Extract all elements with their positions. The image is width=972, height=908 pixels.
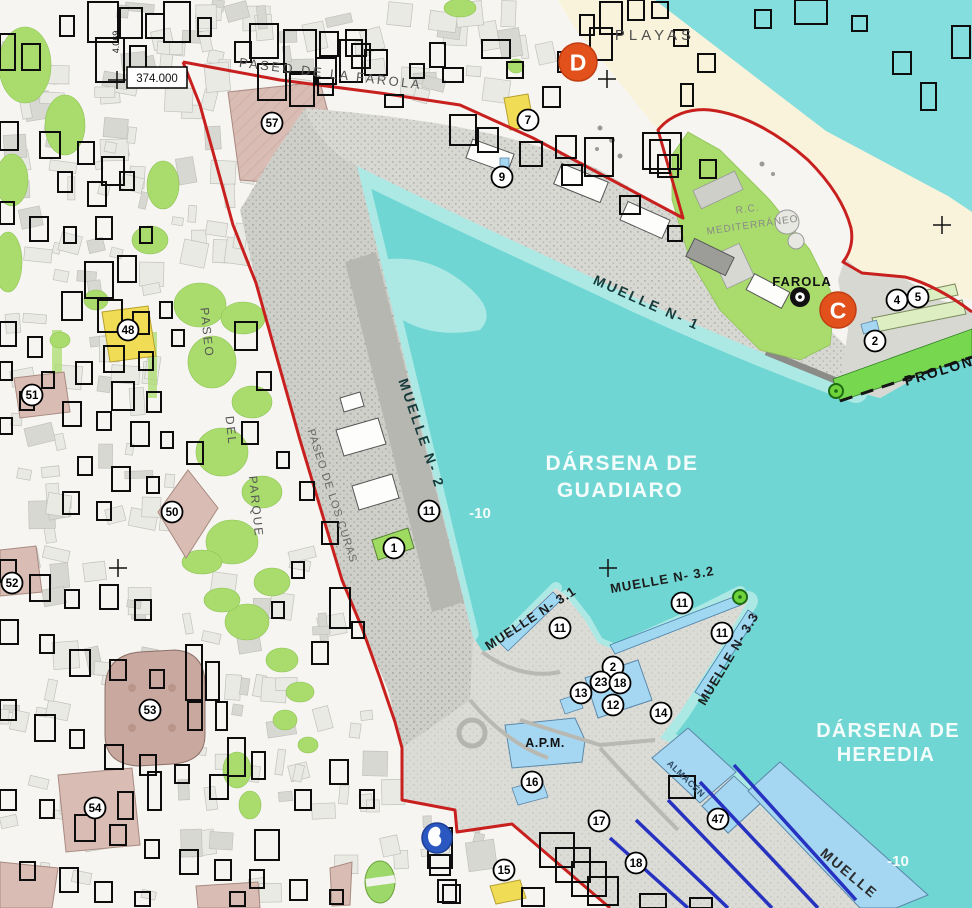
city-block: [180, 239, 209, 268]
svg-text:2: 2: [872, 336, 878, 348]
svg-text:17: 17: [593, 816, 606, 828]
numbered-marker-18[interactable]: 18: [626, 853, 647, 874]
city-block: [380, 835, 401, 857]
city-block: [256, 5, 267, 29]
svg-text:2: 2: [610, 662, 616, 674]
numbered-marker-50[interactable]: 50: [162, 502, 183, 523]
depth-label: -10: [887, 853, 909, 870]
city-block: [466, 66, 481, 77]
city-block: [99, 444, 113, 468]
svg-text:11: 11: [423, 506, 436, 518]
park-blob: [132, 226, 168, 254]
numbered-marker-11[interactable]: 11: [672, 593, 693, 614]
city-block: [501, 0, 516, 27]
city-block: [83, 561, 107, 582]
numbered-marker-47[interactable]: 47: [708, 809, 729, 830]
city-block: [170, 43, 183, 55]
city-block: [465, 839, 497, 872]
svg-text:9: 9: [499, 172, 505, 184]
water-basin-label: DÁRSENA DE: [545, 452, 698, 475]
city-block: [5, 313, 21, 333]
cathedral-detail: [168, 724, 176, 732]
city-block: [127, 127, 137, 144]
park-blob: [444, 0, 476, 17]
svg-text:57: 57: [266, 118, 279, 130]
city-block: [142, 497, 161, 517]
svg-text:12: 12: [607, 700, 620, 712]
city-block: [224, 674, 241, 700]
depth-label: -10: [469, 505, 491, 522]
numbered-marker-16[interactable]: 16: [522, 772, 543, 793]
svg-text:51: 51: [26, 390, 39, 402]
park-blob: [286, 682, 314, 702]
street-label: A.P.M.: [525, 736, 565, 750]
numbered-marker-7[interactable]: 7: [518, 110, 539, 131]
city-block: [24, 247, 53, 263]
building-pink: [330, 862, 352, 906]
svg-text:5: 5: [915, 292, 922, 304]
svg-text:7: 7: [525, 115, 531, 127]
coordinate-label: 4.069: [111, 31, 121, 54]
city-block: [205, 221, 227, 237]
blue-point-marker[interactable]: [422, 823, 452, 853]
numbered-marker-23[interactable]: 23: [591, 672, 612, 693]
city-block: [360, 710, 373, 721]
park-blob: [147, 161, 179, 209]
svg-text:4: 4: [894, 295, 901, 307]
city-block: [209, 831, 233, 850]
svg-text:D: D: [570, 49, 587, 75]
city-block: [188, 205, 197, 222]
city-block: [95, 87, 115, 98]
svg-text:15: 15: [498, 865, 511, 877]
numbered-marker-52[interactable]: 52: [2, 573, 23, 594]
svg-text:52: 52: [6, 578, 19, 590]
city-block: [42, 586, 67, 606]
city-block: [164, 474, 174, 488]
svg-text:11: 11: [554, 623, 567, 635]
city-block: [53, 269, 69, 282]
svg-text:13: 13: [575, 688, 588, 700]
numbered-marker-57[interactable]: 57: [262, 113, 283, 134]
street-label: PLAYAS: [615, 27, 695, 44]
city-block: [349, 723, 361, 739]
numbered-marker-51[interactable]: 51: [22, 385, 43, 406]
green-dot-marker[interactable]: [733, 590, 747, 604]
city-block: [280, 31, 297, 42]
city-block: [164, 87, 193, 112]
svg-text:53: 53: [144, 705, 157, 717]
svg-text:1: 1: [391, 543, 398, 555]
city-block: [41, 466, 60, 478]
city-block: [172, 217, 184, 226]
numbered-marker-5[interactable]: 5: [908, 287, 929, 308]
numbered-marker-4[interactable]: 4: [887, 290, 908, 311]
numbered-marker-2[interactable]: 2: [865, 331, 886, 352]
cathedral-detail: [168, 684, 176, 692]
park-blob: [50, 332, 70, 348]
svg-text:23: 23: [595, 677, 608, 689]
city-block: [210, 160, 236, 185]
cathedral-detail: [128, 724, 136, 732]
green-dot-marker[interactable]: [829, 384, 843, 398]
city-block: [23, 313, 47, 324]
city-block: [50, 563, 70, 589]
svg-text:16: 16: [526, 777, 539, 789]
city-block: [313, 626, 331, 635]
city-block: [312, 803, 336, 819]
park-blob: [273, 710, 297, 730]
numbered-marker-11[interactable]: 11: [712, 623, 733, 644]
svg-text:C: C: [830, 297, 847, 323]
numbered-marker-53[interactable]: 53: [140, 700, 161, 721]
water-basin-label: DÁRSENA DE: [816, 719, 960, 742]
svg-text:11: 11: [676, 598, 689, 610]
city-block: [52, 641, 80, 670]
numbered-marker-11[interactable]: 11: [419, 501, 440, 522]
letter-marker-D[interactable]: D: [559, 43, 597, 81]
park-blob: [254, 568, 290, 596]
city-block: [338, 785, 349, 804]
city-block: [0, 709, 9, 724]
park-blob: [266, 648, 298, 672]
numbered-marker-48[interactable]: 48: [118, 320, 139, 341]
city-block: [259, 883, 281, 902]
city-block: [363, 751, 388, 776]
svg-text:50: 50: [166, 507, 179, 519]
city-block: [104, 141, 117, 153]
lighthouse-icon[interactable]: [790, 287, 810, 307]
port-map-stage: DÁRSENA DEGUADIARODÁRSENA DEHEREDIA-10-1…: [0, 0, 972, 908]
club-pool: [788, 233, 804, 249]
park-blob: [239, 791, 261, 819]
city-block: [103, 117, 128, 138]
city-block: [366, 800, 379, 812]
city-block: [232, 704, 244, 716]
building-pink: [0, 862, 58, 908]
street-label: FAROLA: [772, 274, 831, 289]
city-block: [97, 376, 112, 393]
svg-text:18: 18: [614, 678, 627, 690]
numbered-marker-17[interactable]: 17: [589, 811, 610, 832]
numbered-marker-13[interactable]: 13: [571, 683, 592, 704]
svg-text:11: 11: [716, 628, 729, 640]
port-map: DÁRSENA DEGUADIARODÁRSENA DEHEREDIA-10-1…: [0, 0, 972, 908]
water-basin-label: GUADIARO: [557, 479, 683, 502]
numbered-marker-9[interactable]: 9: [492, 167, 513, 188]
city-block: [387, 2, 413, 27]
park-blob: [0, 27, 51, 103]
city-block: [129, 387, 145, 415]
city-block: [278, 791, 292, 802]
numbered-marker-18[interactable]: 18: [610, 673, 631, 694]
park-blob: [298, 737, 318, 753]
numbered-marker-15[interactable]: 15: [494, 860, 515, 881]
svg-text:18: 18: [630, 858, 643, 870]
svg-text:54: 54: [89, 803, 102, 815]
svg-text:47: 47: [712, 814, 725, 826]
svg-text:48: 48: [122, 325, 135, 337]
svg-text:14: 14: [655, 708, 668, 720]
coordinate-label: 374.000: [136, 73, 178, 85]
letter-marker-C[interactable]: C: [820, 292, 856, 328]
city-block: [17, 468, 32, 480]
cathedral-detail: [128, 684, 136, 692]
water-basin-label: HEREDIA: [837, 744, 935, 766]
park-blob: [221, 302, 265, 334]
city-block: [139, 262, 164, 287]
numbered-marker-54[interactable]: 54: [85, 798, 106, 819]
park-blob: [204, 588, 240, 612]
numbered-marker-11[interactable]: 11: [550, 618, 571, 639]
numbered-marker-1[interactable]: 1: [384, 538, 405, 559]
city-block: [180, 829, 202, 857]
numbered-marker-12[interactable]: 12: [603, 695, 624, 716]
numbered-marker-14[interactable]: 14: [651, 703, 672, 724]
